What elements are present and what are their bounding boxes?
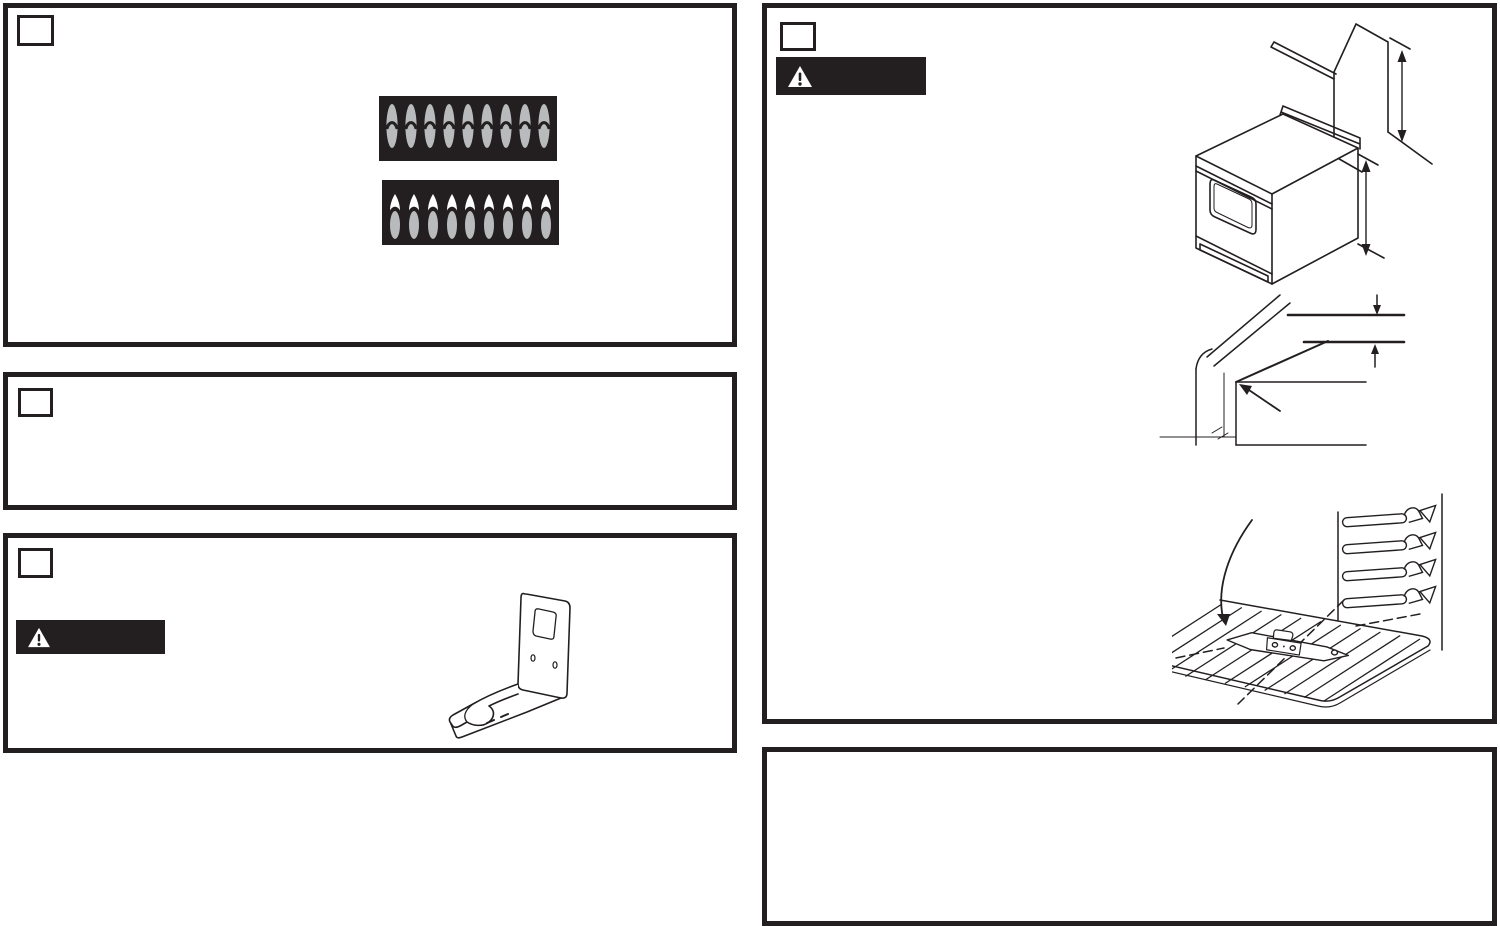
flame-icon	[405, 103, 417, 149]
flame-icon	[443, 103, 455, 149]
countertop-corner-illustration	[1152, 287, 1442, 462]
manual-page	[0, 0, 1500, 926]
rack-support	[1342, 559, 1437, 582]
oven-rack-illustration	[1172, 492, 1482, 717]
flame-icon	[481, 103, 493, 149]
step-number-box-4	[780, 22, 816, 51]
rack-support	[1342, 586, 1437, 609]
flame-icon	[483, 191, 495, 241]
warning-triangle-icon	[27, 627, 51, 648]
flame-icon	[521, 191, 533, 241]
anti-tip-bracket-illustration	[437, 586, 577, 744]
warning-triangle-icon	[787, 65, 813, 88]
flame-icon	[540, 191, 552, 241]
rack-support	[1342, 505, 1437, 528]
burner-flames-inner-cone-illustration	[379, 96, 557, 161]
range-clearance-illustration	[1188, 10, 1498, 288]
step-number-box-1	[17, 15, 54, 46]
panel-step-middle	[3, 372, 737, 510]
panel-burner-flames	[3, 3, 737, 347]
flame-icon	[519, 103, 531, 149]
step-number-box-2	[18, 388, 53, 417]
flame-icon	[464, 191, 476, 241]
flame-icon	[424, 103, 436, 149]
flame-icon	[502, 191, 514, 241]
flame-icon	[408, 191, 420, 241]
flame-icon	[538, 103, 550, 149]
flame-icon	[446, 191, 458, 241]
burner-flames-yellow-tips-illustration	[382, 180, 559, 245]
warning-banner	[776, 57, 926, 95]
panel-bottom-right	[762, 747, 1497, 926]
warning-banner	[16, 620, 165, 654]
flame-icon	[389, 191, 401, 241]
step-number-box-3	[18, 548, 53, 578]
flame-icon	[386, 103, 398, 149]
flame-icon	[500, 103, 512, 149]
rack-support	[1342, 532, 1437, 555]
flame-icon	[427, 191, 439, 241]
rack-supports	[1342, 505, 1437, 609]
flame-icon	[462, 103, 474, 149]
